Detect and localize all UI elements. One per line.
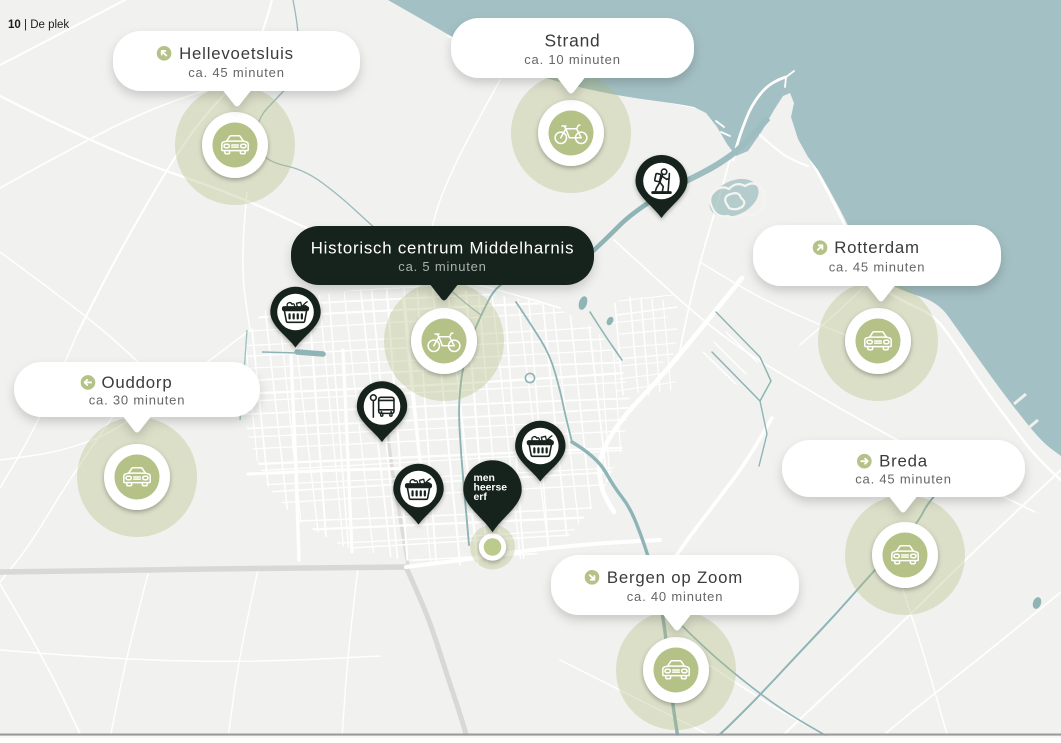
svg-text:ca. 45 minuten: ca. 45 minuten [829, 260, 925, 275]
svg-text:Bergen op Zoom: Bergen op Zoom [607, 568, 743, 587]
svg-text:10 | De plek: 10 | De plek [8, 19, 69, 31]
svg-text:ca. 45 minuten: ca. 45 minuten [855, 472, 951, 487]
svg-text:Rotterdam: Rotterdam [834, 238, 920, 257]
svg-text:ca. 10 minuten: ca. 10 minuten [524, 52, 620, 67]
svg-text:ca. 5 minuten: ca. 5 minuten [398, 259, 486, 274]
svg-text:Breda: Breda [879, 452, 928, 471]
svg-text:Strand: Strand [544, 30, 600, 50]
svg-text:ca. 30 minuten: ca. 30 minuten [89, 392, 185, 407]
svg-text:Hellevoetsluis: Hellevoetsluis [179, 44, 294, 63]
svg-text:Ouddorp: Ouddorp [102, 373, 173, 392]
svg-text:ca. 45 minuten: ca. 45 minuten [188, 65, 284, 80]
svg-text:erf: erf [474, 492, 488, 503]
svg-text:ca. 40 minuten: ca. 40 minuten [627, 589, 723, 604]
svg-text:Historisch centrum Middelharni: Historisch centrum Middelharnis [311, 238, 575, 257]
